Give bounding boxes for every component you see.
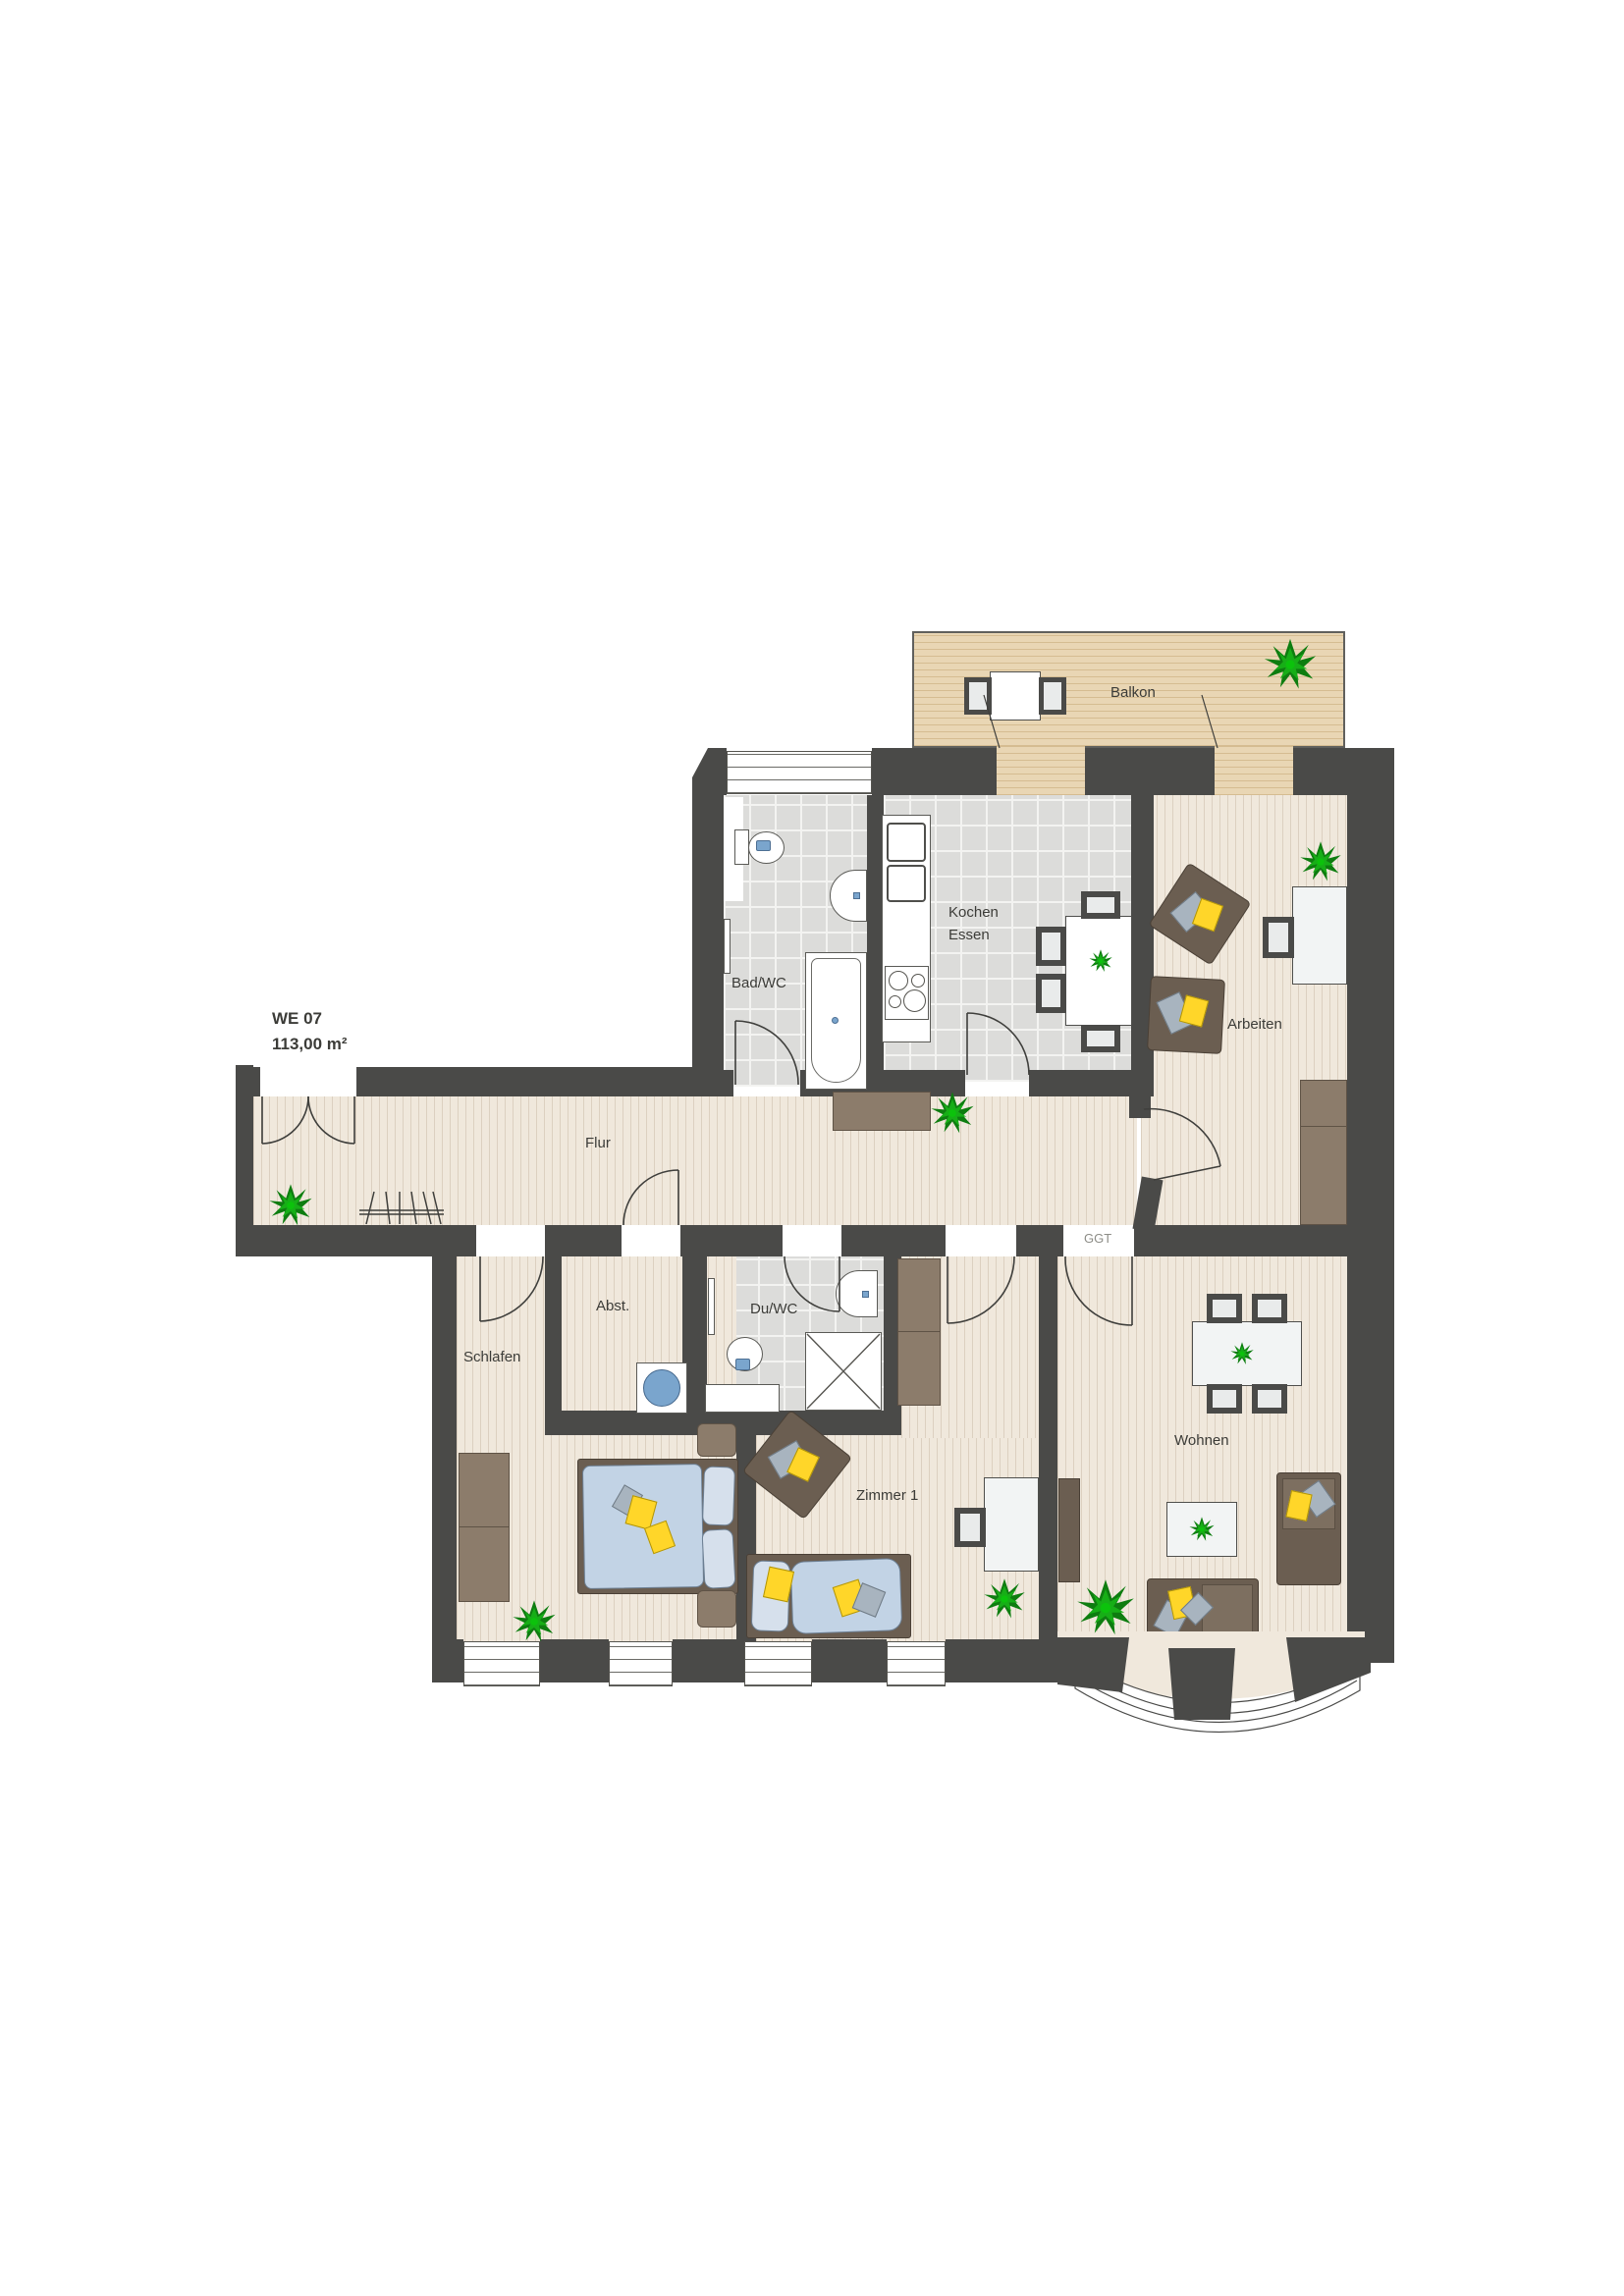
mirror [708, 1278, 715, 1335]
wall-segment [545, 1225, 622, 1256]
wall-segment [1347, 748, 1394, 1663]
wall-segment [1129, 1096, 1151, 1118]
dining-chair [1081, 891, 1120, 919]
window [887, 1641, 946, 1686]
desk-chair [1263, 917, 1294, 958]
wall-segment [680, 1225, 783, 1256]
faucet [862, 1291, 869, 1298]
nightstand [697, 1590, 736, 1628]
wall-segment [872, 748, 997, 795]
coffee-table [1166, 1502, 1237, 1557]
wall-segment [946, 1639, 1057, 1682]
window [463, 1641, 540, 1686]
wall-segment [432, 1256, 457, 1649]
wardrobe-divider [459, 1526, 510, 1527]
wall-segment [540, 1639, 609, 1682]
room-label-essen: Essen [948, 927, 990, 943]
dining-chair [1207, 1294, 1242, 1323]
burner [911, 974, 925, 988]
window [727, 751, 872, 794]
dining-table [1065, 916, 1132, 1026]
toilet-seat [756, 840, 771, 851]
dining-chair [1207, 1384, 1242, 1414]
burner [889, 995, 901, 1008]
wall-segment [1131, 795, 1154, 1096]
bathtub-drain [832, 1017, 839, 1024]
wall-segment [724, 1070, 733, 1096]
shelf [1058, 1478, 1080, 1582]
window [744, 1641, 812, 1686]
desk [1292, 886, 1347, 985]
desk [984, 1477, 1039, 1572]
wardrobe-divider [897, 1331, 941, 1332]
room-label-arbeiten: Arbeiten [1227, 1016, 1282, 1033]
balcony-door-opening [997, 746, 1085, 795]
balcony-door-opening [1215, 746, 1293, 795]
sideboard [1300, 1080, 1347, 1225]
room-label-balkon: Balkon [1110, 684, 1156, 701]
dining-chair [1081, 1025, 1120, 1052]
room-label-schlafen: Schlafen [463, 1349, 520, 1365]
vanity [705, 1384, 780, 1413]
entry-door-opening [260, 1060, 356, 1096]
room-label-kochen: Kochen [948, 904, 999, 921]
mirror [724, 919, 731, 974]
room-label-abst: Abst. [596, 1298, 629, 1314]
shower [805, 1332, 882, 1411]
hall-sideboard [833, 1092, 931, 1131]
room-label-zimmer1: Zimmer 1 [856, 1487, 918, 1504]
wall-segment [545, 1256, 562, 1414]
dining-chair [1036, 974, 1066, 1013]
wall-segment [1016, 1225, 1063, 1256]
floor-plan: WE 07 113,00 m² Balkon Bad/WC Kochen Ess… [0, 0, 1624, 2296]
dining-chair [1036, 927, 1066, 966]
room-label-duwc: Du/WC [750, 1301, 797, 1317]
balcony-table [990, 671, 1041, 721]
sideboard-divider [1300, 1126, 1347, 1127]
wall-segment [1039, 1256, 1057, 1642]
bed-pillow [701, 1528, 735, 1589]
room-flur-floor [253, 1096, 1137, 1225]
window [609, 1641, 673, 1686]
unit-id-label: WE 07 [272, 1009, 322, 1029]
toilet-cistern [734, 829, 749, 865]
kitchen-sink [887, 823, 926, 862]
dining-chair [1252, 1384, 1287, 1414]
balcony-chair [1039, 677, 1066, 715]
wall-segment [812, 1639, 887, 1682]
wall-segment [673, 1639, 744, 1682]
bay-glass [1075, 1659, 1360, 1733]
wall-segment [1134, 1225, 1347, 1256]
desk-chair [954, 1508, 986, 1547]
bed-pillow [702, 1466, 735, 1525]
kitchen-sink [887, 865, 926, 902]
room-label-wohnen: Wohnen [1174, 1432, 1229, 1449]
unit-area-label: 113,00 m² [272, 1035, 348, 1054]
room-label-bad: Bad/WC [731, 975, 786, 991]
wall-segment [692, 771, 724, 1096]
wall-segment [236, 1067, 260, 1096]
wall-segment [841, 1225, 946, 1256]
balcony-chair [964, 677, 992, 715]
dining-table [1192, 1321, 1302, 1386]
duwc-sink [836, 1270, 878, 1317]
wardrobe [459, 1453, 510, 1602]
burner [889, 971, 908, 990]
wall-segment [432, 1639, 463, 1682]
wall-segment [1085, 748, 1215, 795]
dining-chair [1252, 1294, 1287, 1323]
plant-icon [497, 976, 532, 1010]
wall-segment [236, 1225, 476, 1256]
washing-machine-drum [643, 1369, 680, 1407]
faucet [853, 892, 860, 899]
nightstand [697, 1423, 736, 1457]
door-label-ggt: GGT [1084, 1231, 1111, 1246]
toilet-seat [735, 1359, 750, 1370]
burner [903, 989, 926, 1012]
room-label-flur: Flur [585, 1135, 611, 1151]
wardrobe [897, 1258, 941, 1406]
wall-segment [356, 1067, 724, 1096]
sofa-seat [1202, 1584, 1253, 1641]
